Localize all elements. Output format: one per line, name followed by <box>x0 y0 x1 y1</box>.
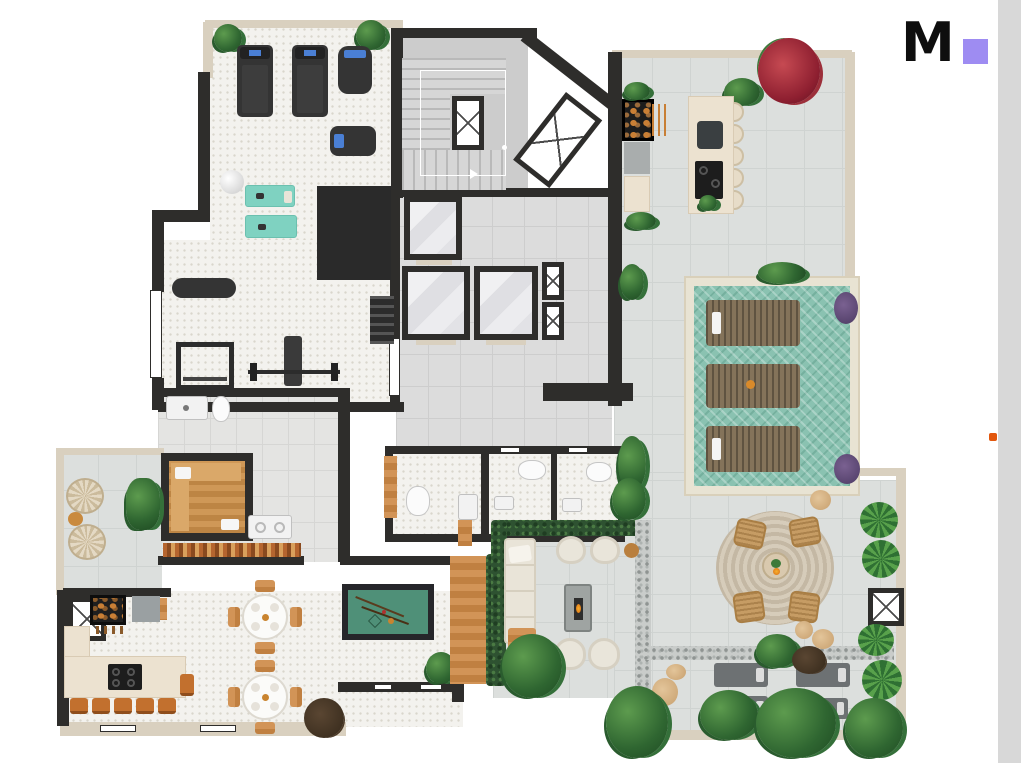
wicker-chair <box>732 590 766 624</box>
wood-deck <box>450 556 486 684</box>
yoga-mat <box>245 185 295 207</box>
wicker-chair <box>787 590 821 624</box>
party-right-window <box>420 684 442 690</box>
elevator-cabin <box>402 266 470 340</box>
elliptical-machine <box>338 46 372 94</box>
plant <box>834 292 858 324</box>
patio-side-table <box>68 512 83 526</box>
plant <box>845 698 903 758</box>
floor-plan <box>0 0 1021 763</box>
plant <box>612 478 646 520</box>
billiard-top-wall <box>340 556 460 565</box>
spine-wall <box>608 52 622 406</box>
dining-chair <box>255 580 275 592</box>
plant <box>700 690 758 740</box>
gym-black-mat <box>317 186 391 280</box>
treadmill <box>237 45 273 117</box>
ab-bench <box>172 278 236 298</box>
palm-plant <box>860 502 898 538</box>
accent-dot <box>989 433 997 441</box>
bathroom-bench <box>458 520 472 546</box>
toilet <box>212 396 230 422</box>
bathroom-threshold <box>568 447 588 453</box>
plant <box>620 264 644 300</box>
palm-plant <box>858 624 894 656</box>
dining-table <box>242 674 288 720</box>
bathroom-sink <box>494 496 514 510</box>
elevator-cabin <box>404 196 462 260</box>
stair-path-dot <box>502 145 507 150</box>
bar-stool <box>180 674 194 696</box>
bathroom-sink <box>562 498 582 512</box>
plant <box>758 262 806 284</box>
vent-shaft <box>542 262 564 300</box>
terrace-counter-gray <box>624 142 650 174</box>
brand-logo-letter: M <box>901 16 955 70</box>
stair-path-arrow <box>470 169 478 179</box>
party-cooktop <box>108 664 142 690</box>
terrace-island <box>688 96 734 214</box>
terrace-mat <box>624 176 650 212</box>
bar-stool <box>70 698 88 714</box>
fire-pit-table <box>762 552 790 580</box>
skewers <box>652 104 666 136</box>
bathroom-threshold <box>500 447 520 453</box>
wicker-chair <box>788 516 822 549</box>
bar-stool <box>158 698 176 714</box>
wicker-parasol <box>68 524 106 560</box>
dumbbell-rack <box>370 296 394 344</box>
yoga-mat <box>245 215 297 238</box>
dining-chair <box>228 687 240 707</box>
stair-top-wall <box>395 28 537 38</box>
party-right-bottom-wall <box>338 682 464 692</box>
wicker-parasol <box>66 478 104 514</box>
gym-left-top-wall <box>203 22 213 78</box>
dining-chair <box>228 607 240 627</box>
tree <box>502 634 562 698</box>
plant <box>624 82 650 100</box>
lounge-armchair <box>588 638 620 670</box>
lounge-side-table <box>624 543 639 558</box>
lounge-armchair <box>556 536 586 564</box>
bench-press <box>248 336 340 394</box>
palm-plant <box>862 660 902 700</box>
party-counter-gray <box>132 596 160 622</box>
palm-plant <box>862 540 900 578</box>
elevator-threshold <box>416 340 456 345</box>
toilet <box>586 462 612 482</box>
elevator-threshold <box>486 340 526 345</box>
plant <box>626 212 656 230</box>
party-bottom-window <box>200 725 236 732</box>
party-bottom-window <box>100 725 136 732</box>
elevator-threshold <box>416 260 452 265</box>
fire-table <box>564 584 592 632</box>
hall-l-wall <box>543 383 633 401</box>
plant <box>756 688 836 758</box>
plant <box>834 454 860 484</box>
locker-bench <box>163 543 301 557</box>
treadmill <box>292 45 328 117</box>
sauna <box>161 453 253 541</box>
vanity-sinks <box>248 515 292 539</box>
bathroom-bench <box>384 456 397 518</box>
stair-path-line <box>420 70 506 176</box>
dining-chair <box>290 607 302 627</box>
hedge <box>495 520 647 536</box>
party-counter-wood-edge <box>160 598 167 620</box>
billiard-table <box>342 584 434 640</box>
in-pool-lounger <box>706 300 800 346</box>
patio-top-wall <box>56 448 164 455</box>
toilet <box>406 486 430 516</box>
dining-chair <box>255 722 275 734</box>
lobby-left-window <box>389 338 400 396</box>
bar-stool <box>114 698 132 714</box>
toilet <box>518 460 546 480</box>
squat-rack <box>176 342 234 390</box>
party-grill <box>90 595 126 625</box>
gym-left-wall <box>198 72 210 218</box>
pouf <box>810 490 831 510</box>
right-gray-strip <box>998 0 1021 763</box>
gym-left-window <box>150 290 162 378</box>
plant <box>792 646 826 674</box>
wicker-chair <box>732 517 767 551</box>
plant <box>304 698 344 738</box>
changing-bottom-wall <box>158 556 304 565</box>
dining-chair <box>255 660 275 672</box>
sun-lounger <box>714 663 768 687</box>
flowering-plant <box>758 38 820 104</box>
stability-ball <box>220 170 244 194</box>
shower <box>166 396 208 420</box>
pouf <box>666 664 686 680</box>
dining-chair <box>290 687 302 707</box>
patio-left-wall <box>56 450 64 595</box>
in-pool-lounger <box>706 364 800 408</box>
grill-handles <box>96 626 124 634</box>
in-pool-lounger <box>706 426 800 472</box>
gym-left-lower-wall <box>152 210 164 292</box>
lounge-armchair <box>590 536 620 564</box>
brand-logo-square <box>963 39 988 64</box>
plant <box>606 686 668 758</box>
party-right-window <box>374 684 392 690</box>
terrace-vent-shaft <box>868 588 904 626</box>
bar-stool <box>92 698 110 714</box>
pouf <box>795 621 813 639</box>
elevator-cabin <box>474 266 538 340</box>
dining-chair <box>255 642 275 654</box>
bathroom-counter <box>458 494 478 520</box>
bar-stool <box>136 698 154 714</box>
dining-table <box>242 594 288 640</box>
changing-right-wall <box>338 388 350 562</box>
bbq-grill <box>622 99 654 141</box>
plant <box>126 478 160 530</box>
exercise-bike <box>330 126 376 156</box>
vent-shaft <box>542 302 564 340</box>
